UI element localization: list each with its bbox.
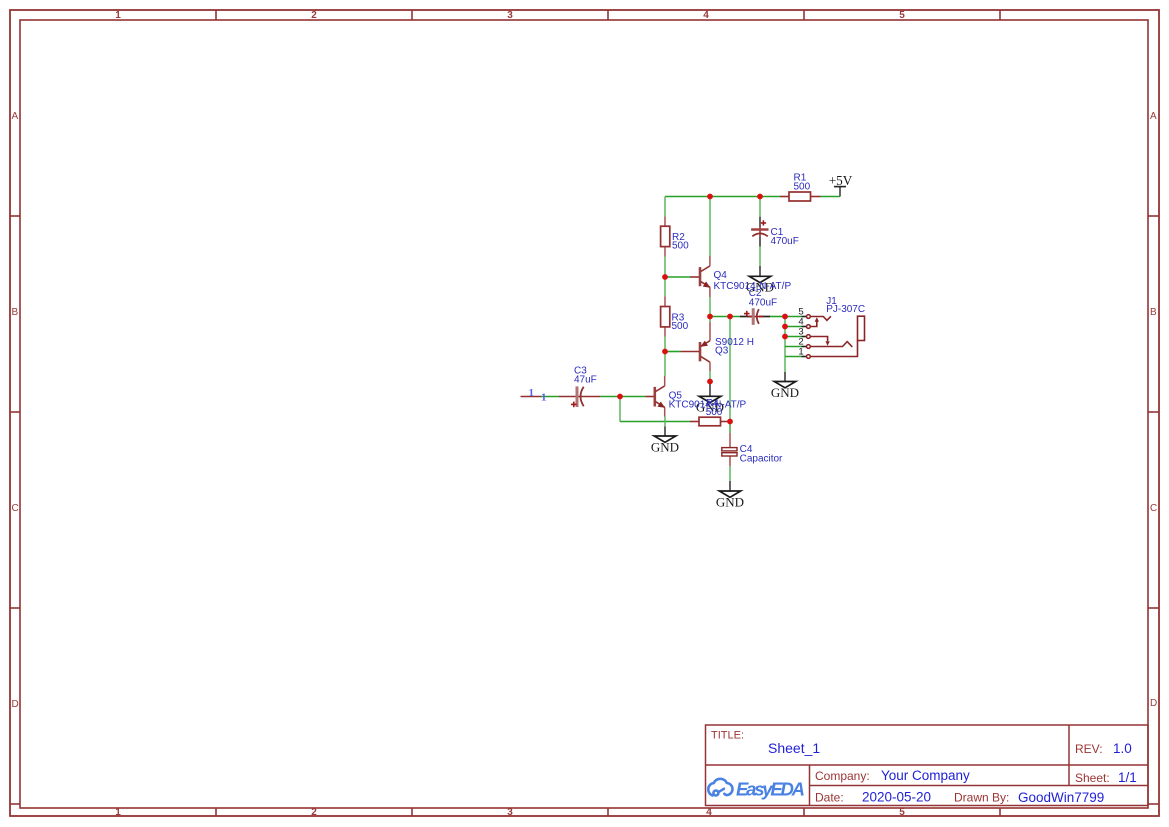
svg-text:GND: GND	[651, 439, 679, 454]
svg-text:2020-05-20: 2020-05-20	[862, 790, 931, 805]
svg-text:1: 1	[115, 807, 121, 818]
svg-text:+5V: +5V	[829, 173, 853, 188]
svg-text:500: 500	[706, 407, 723, 418]
svg-text:500: 500	[672, 241, 689, 252]
svg-text:GND: GND	[716, 495, 744, 510]
svg-text:EasyEDA: EasyEDA	[736, 779, 805, 800]
svg-text:3: 3	[507, 10, 513, 21]
svg-text:PJ-307C: PJ-307C	[826, 304, 865, 315]
svg-text:C: C	[12, 503, 19, 514]
svg-text:Q4: Q4	[714, 270, 728, 281]
svg-text:1.0: 1.0	[1113, 741, 1132, 756]
svg-text:2: 2	[311, 807, 317, 818]
svg-text:1: 1	[115, 10, 121, 21]
svg-text:47uF: 47uF	[574, 375, 597, 386]
svg-text:1/1: 1/1	[1118, 770, 1137, 785]
svg-text:Capacitor: Capacitor	[740, 453, 783, 464]
svg-text:1: 1	[529, 387, 535, 399]
svg-text:470uF: 470uF	[771, 236, 799, 247]
svg-text:500: 500	[672, 321, 689, 332]
svg-text:470uF: 470uF	[749, 298, 777, 309]
svg-text:3: 3	[507, 807, 513, 818]
svg-text:2: 2	[311, 10, 317, 21]
svg-text:Drawn By:: Drawn By:	[954, 791, 1009, 805]
svg-text:Sheet:: Sheet:	[1075, 771, 1110, 785]
svg-text:B: B	[1150, 307, 1157, 318]
svg-text:A: A	[1150, 111, 1157, 122]
svg-text:500: 500	[794, 182, 811, 193]
svg-text:GND: GND	[771, 385, 799, 400]
svg-text:B: B	[12, 307, 19, 318]
svg-text:A: A	[12, 111, 19, 122]
svg-text:1: 1	[798, 347, 803, 358]
svg-text:4: 4	[703, 10, 709, 21]
svg-text:Sheet_1: Sheet_1	[768, 740, 820, 756]
svg-text:D: D	[12, 699, 19, 710]
svg-text:Company:: Company:	[815, 769, 870, 783]
svg-text:REV:: REV:	[1075, 742, 1103, 756]
svg-text:Q3: Q3	[715, 346, 729, 357]
svg-text:5: 5	[899, 807, 905, 818]
svg-text:Your Company: Your Company	[881, 768, 970, 783]
svg-text:GoodWin7799: GoodWin7799	[1018, 790, 1104, 805]
svg-text:D: D	[1150, 698, 1157, 709]
svg-text:TITLE:: TITLE:	[711, 730, 744, 742]
svg-text:5: 5	[899, 10, 905, 21]
svg-text:Date:: Date:	[815, 791, 844, 805]
svg-text:4: 4	[706, 807, 712, 818]
svg-text:1: 1	[541, 392, 547, 404]
svg-text:C: C	[1150, 503, 1157, 514]
